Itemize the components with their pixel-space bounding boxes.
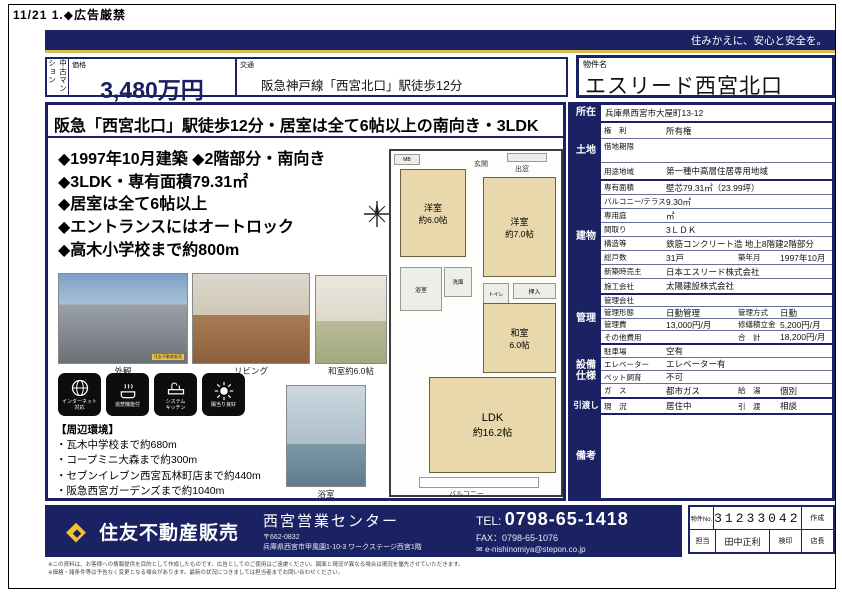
feature-label: インターネット 対応 [62, 399, 97, 411]
staff-label: 担当 [690, 530, 716, 552]
spec-section-facilities: 設備 仕様 駐車場空有 エレベーターエレベーター有 ペット飼育不可 ガ ス都市ガ… [571, 345, 832, 399]
toilet-label: トイレ [488, 291, 503, 298]
room-size: 約16.2帖 [473, 424, 512, 439]
spec-row: 間取り3ＬＤＫ [601, 223, 832, 237]
price-value: 3,480万円 [69, 71, 235, 105]
spec-row: ペット飼育不可 [601, 371, 832, 384]
property-no-value: 31233042 [714, 507, 801, 529]
surroundings-item: ・コープミニ大森まで約300m [56, 453, 261, 468]
room-size: 6.0帖 [509, 339, 529, 351]
spec-row: 兵庫県西宮市大屋町13-12 [601, 105, 832, 121]
disclaimer: ※この資料は、お客様への情報提供を目的として作成したものです。広告としてのご使用… [48, 561, 830, 578]
section-label: 建物 [571, 181, 601, 293]
feature-badge: 追焚機能付 [106, 373, 149, 416]
surroundings-title: 【周辺環境】 [56, 423, 261, 438]
feature-label: システム キッチン [165, 399, 185, 411]
entrance-label: 玄関 [474, 159, 488, 169]
bullet-item: ◆居室は全て6帖以上 [58, 194, 394, 217]
traffic-value: 阪急神戸線「西宮北口」駅徒歩12分 [261, 75, 462, 94]
made-by-label: 作成 [802, 507, 833, 529]
floor-plan: MB 玄関 出窓 洋室 約6.0帖 洋室 約7.0帖 浴室 洗面 トイレ [389, 149, 563, 497]
category-strip: 中古マンション [47, 59, 69, 95]
photo-bathroom [286, 385, 366, 487]
photo-caption: 浴室 [286, 488, 366, 500]
spec-row: 駐車場空有 [601, 345, 832, 358]
section-label: 設備 仕様 [571, 345, 601, 397]
sunny-icon [214, 381, 234, 401]
price-cell: 価格 3,480万円 [69, 59, 237, 95]
traffic-cell: 交通 阪急神戸線「西宮北口」駅徒歩12分 [237, 59, 566, 95]
company-name: 住友不動産販売 [99, 518, 239, 545]
room-size: 約7.0帖 [505, 228, 534, 240]
meter-box: MB [394, 154, 420, 165]
bath-label: 浴室 [415, 285, 427, 294]
spec-row: ガ ス都市ガス 給 湯個別 [601, 384, 832, 397]
disclaimer-line: ※この資料は、お客様への情報提供を目的として作成したものです。広告としてのご使用… [48, 561, 830, 569]
office-block: 西宮営業センター 〒662-0832 兵庫県西宮市甲風園1-10-3 ワークステ… [263, 510, 468, 552]
spec-table: 所在 兵庫県西宮市大屋町13-12 土地 権 利所有権 借地期限 用途地域第一種… [568, 102, 835, 501]
surroundings-item: ・瓦木中学校まで約680m [56, 438, 261, 453]
spec-row: 権 利所有権 [601, 123, 832, 139]
spec-row: エレベーターエレベーター有 [601, 358, 832, 371]
footer-band: 住友不動産販売 西宮営業センター 〒662-0832 兵庫県西宮市甲風園1-10… [45, 505, 682, 557]
room-name: LDK [482, 412, 503, 424]
photo-japanese-room [315, 275, 387, 364]
system-kitchen-icon [166, 378, 186, 398]
feature-badge: システム キッチン [154, 373, 197, 416]
spec-section-building: 建物 専有面積壁芯79.31㎡（23.99坪） バルコニー/テラス9.30㎡ 専… [571, 181, 832, 295]
bullet-item: ◆高木小学校まで約800m [58, 240, 394, 263]
top-note: 11/21 1.◆広告厳禁 [13, 6, 126, 23]
spec-row: 構造等鉄筋コンクリート造 地上8階建2階部分 [601, 237, 832, 251]
spec-section-location: 所在 兵庫県西宮市大屋町13-12 [571, 105, 832, 123]
feature-label: 陽当り良好 [211, 402, 236, 408]
headline: 阪急「西宮北口」駅徒歩12分・居室は全て6帖以上の南向き・3LDK [48, 105, 563, 138]
section-label: 引渡し [571, 399, 601, 413]
brand-tagline-banner: 住みかえに、安心と安全を。 [45, 30, 835, 53]
room-ldk: LDK 約16.2帖 [429, 377, 556, 473]
company-logo: 住友不動産販売 [45, 518, 263, 545]
tagline-text: 住みかえに、安心と安全を。 [691, 35, 827, 47]
fax-number: FAX：0798-65-1076 [476, 531, 682, 544]
office-name: 西宮営業センター [263, 510, 468, 531]
spec-row: 新築時売主日本エスリード株式会社 [601, 265, 832, 279]
property-flyer: 11/21 1.◆広告厳禁 住みかえに、安心と安全を。 中古マンション 価格 3… [0, 0, 842, 595]
property-name-box: 物件名 エスリード西宮北口 [576, 55, 835, 98]
section-label: 管理 [571, 295, 601, 343]
photo-watermark: 住友不動産販売 [152, 354, 184, 360]
property-no-label: 物件No. [690, 507, 714, 529]
room-name: 洋室 [424, 201, 442, 214]
photo-living [192, 273, 310, 364]
spec-row: 用途地域第一種中高層住居専用地域 [601, 163, 832, 179]
email-address: e-nishinomiya@stepon.co.jp [485, 545, 586, 554]
spec-row: 借地期限 [601, 139, 832, 163]
room-size: 約6.0帖 [419, 214, 448, 226]
closet-shape: 押入 [513, 283, 556, 299]
contact-block: TEL: 0798-65-1418 FAX：0798-65-1076 ✉ e-n… [468, 509, 682, 554]
washroom-shape: 洗面 [444, 267, 472, 297]
reheat-bath-icon [118, 381, 138, 401]
section-label: 土地 [571, 123, 601, 179]
bathroom-shape: 浴室 [400, 267, 442, 311]
compass-icon [364, 201, 390, 227]
spec-row: 管理会社 [601, 295, 832, 307]
photo-caption: 和室約6.0帖 [315, 365, 387, 377]
check-stamp-label: 検印 [770, 530, 802, 552]
spec-row: 専用庭㎡ [601, 209, 832, 223]
bullet-item: ◆3LDK・専有面積79.31㎡ [58, 172, 394, 195]
spec-row: その他費用 合 計18,200円/月 [601, 331, 832, 343]
spec-row: 総戸数31戸 築年月1997年10月 [601, 251, 832, 265]
spec-section-management: 管理 管理会社 管理形態日勤管理 管理方式日勤 管理費13,000円/月 修繕積… [571, 295, 832, 345]
surroundings-item: ・セブンイレブン西宮瓦林町店まで約440m [56, 469, 261, 484]
balcony-shape [419, 477, 539, 488]
balcony-label: バルコニー [449, 489, 484, 499]
office-address: 兵庫県西宮市甲風園1-10-3 ワークステージ西宮1階 [263, 543, 468, 552]
spec-row: 管理形態日勤管理 管理方式日勤 [601, 307, 832, 319]
bullet-item: ◆エントランスにはオートロック [58, 217, 394, 240]
spec-row: 現 況居住中 引 渡相談 [601, 399, 832, 413]
tel-label: TEL: [476, 514, 501, 528]
mb-label: MB [403, 157, 411, 163]
photo-exterior: 住友不動産販売 [58, 273, 188, 364]
tel-number: 0798-65-1418 [505, 509, 629, 529]
price-label: 価格 [72, 60, 86, 70]
section-label: 備考 [571, 415, 601, 498]
bullet-item: ◆1997年10月建築 ◆2階部分・南向き [58, 149, 394, 172]
spec-row: 管理費13,000円/月 修繕積立金5,200円/月 [601, 319, 832, 331]
feature-badge: 陽当り良好 [202, 373, 245, 416]
spec-section-remarks: 備考 [571, 415, 832, 498]
chief-stamp-label: 店長 [802, 530, 833, 552]
surroundings-item: ・阪急西宮ガーデンズまで約1040m [56, 484, 261, 499]
office-postal: 〒662-0832 [263, 533, 468, 542]
stamp-table: 物件No. 31233042 作成 担当 田中正利 検印 店長 [688, 505, 835, 554]
disclaimer-line: ※価格・諸条件等は予告なく変更となる場合があります。最新の状況につきましては担当… [48, 569, 830, 577]
staff-name: 田中正利 [716, 530, 770, 552]
room-western-1: 洋室 約6.0帖 [400, 169, 466, 257]
spec-section-land: 土地 権 利所有権 借地期限 用途地域第一種中高層住居専用地域 [571, 123, 832, 181]
feature-badge: インターネット 対応 [58, 373, 101, 416]
spec-row: 施工会社太陽建設株式会社 [601, 279, 832, 293]
spec-row: バルコニー/テラス9.30㎡ [601, 195, 832, 209]
traffic-label: 交通 [240, 60, 254, 70]
bay-window-shape [507, 153, 547, 162]
category-label: 中古マンション [47, 59, 69, 95]
selling-points: ◆1997年10月建築 ◆2階部分・南向き ◆3LDK・専有面積79.31㎡ ◆… [58, 149, 394, 263]
stamp-row: 担当 田中正利 検印 店長 [690, 530, 833, 552]
room-western-2: 洋室 約7.0帖 [483, 177, 556, 277]
surroundings: 【周辺環境】 ・瓦木中学校まで約680m ・コープミニ大森まで約300m ・セブ… [56, 423, 261, 499]
spec-section-handover: 引渡し 現 況居住中 引 渡相談 [571, 399, 832, 415]
room-name: 洋室 [510, 215, 528, 228]
toilet-shape: トイレ [483, 283, 509, 305]
spec-row: 専有面積壁芯79.31㎡（23.99坪） [601, 181, 832, 195]
internet-icon [70, 378, 90, 398]
main-content-box: 阪急「西宮北口」駅徒歩12分・居室は全て6帖以上の南向き・3LDK ◆1997年… [45, 102, 566, 501]
feature-badges: インターネット 対応 追焚機能付 システム キッチン [58, 373, 245, 416]
washroom-label: 洗面 [452, 278, 463, 286]
closet-label: 押入 [528, 287, 540, 296]
section-label: 所在 [571, 105, 601, 121]
mail-icon: ✉ [476, 545, 483, 554]
bay-window-label: 出窓 [515, 164, 529, 174]
sumitomo-diamond-icon [69, 520, 91, 542]
feature-label: 追焚機能付 [115, 402, 140, 408]
property-name-value: エスリード西宮北口 [585, 70, 783, 100]
remarks-empty [601, 415, 832, 498]
header-box: 中古マンション 価格 3,480万円 交通 阪急神戸線「西宮北口」駅徒歩12分 [45, 57, 568, 97]
property-name-label: 物件名 [583, 59, 607, 70]
stamp-row: 物件No. 31233042 作成 [690, 507, 833, 530]
room-name: 和室 [510, 326, 528, 339]
room-japanese: 和室 6.0帖 [483, 303, 556, 373]
